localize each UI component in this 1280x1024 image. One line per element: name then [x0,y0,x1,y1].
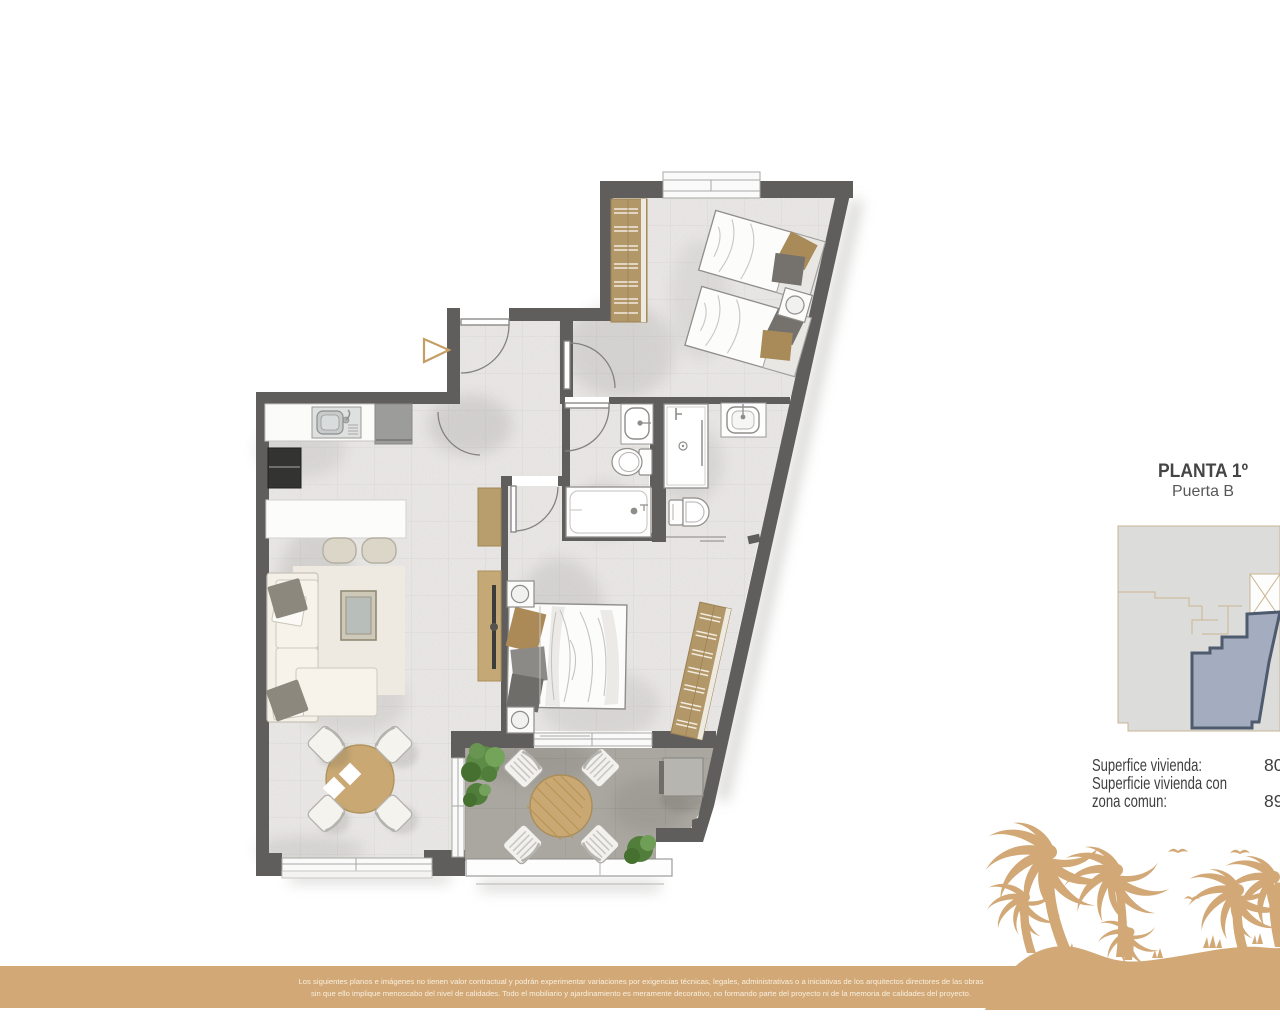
svg-text:Superfice vivienda:: Superfice vivienda: [1092,755,1202,775]
svg-text:89.5: 89.5 [1264,791,1280,811]
svg-text:zona comun:: zona comun: [1092,791,1167,811]
svg-text:Puerta B: Puerta B [1172,483,1234,500]
svg-text:Los siguientes planos e imágen: Los siguientes planos e imágenes no tien… [299,977,984,986]
svg-text:Superficie vivienda con: Superficie vivienda con [1092,773,1227,793]
svg-text:sin que ello implique menoscab: sin que ello implique menoscabo del nive… [311,989,971,998]
svg-text:80.3: 80.3 [1264,755,1280,775]
svg-text:PLANTA 1º: PLANTA 1º [1158,461,1248,482]
